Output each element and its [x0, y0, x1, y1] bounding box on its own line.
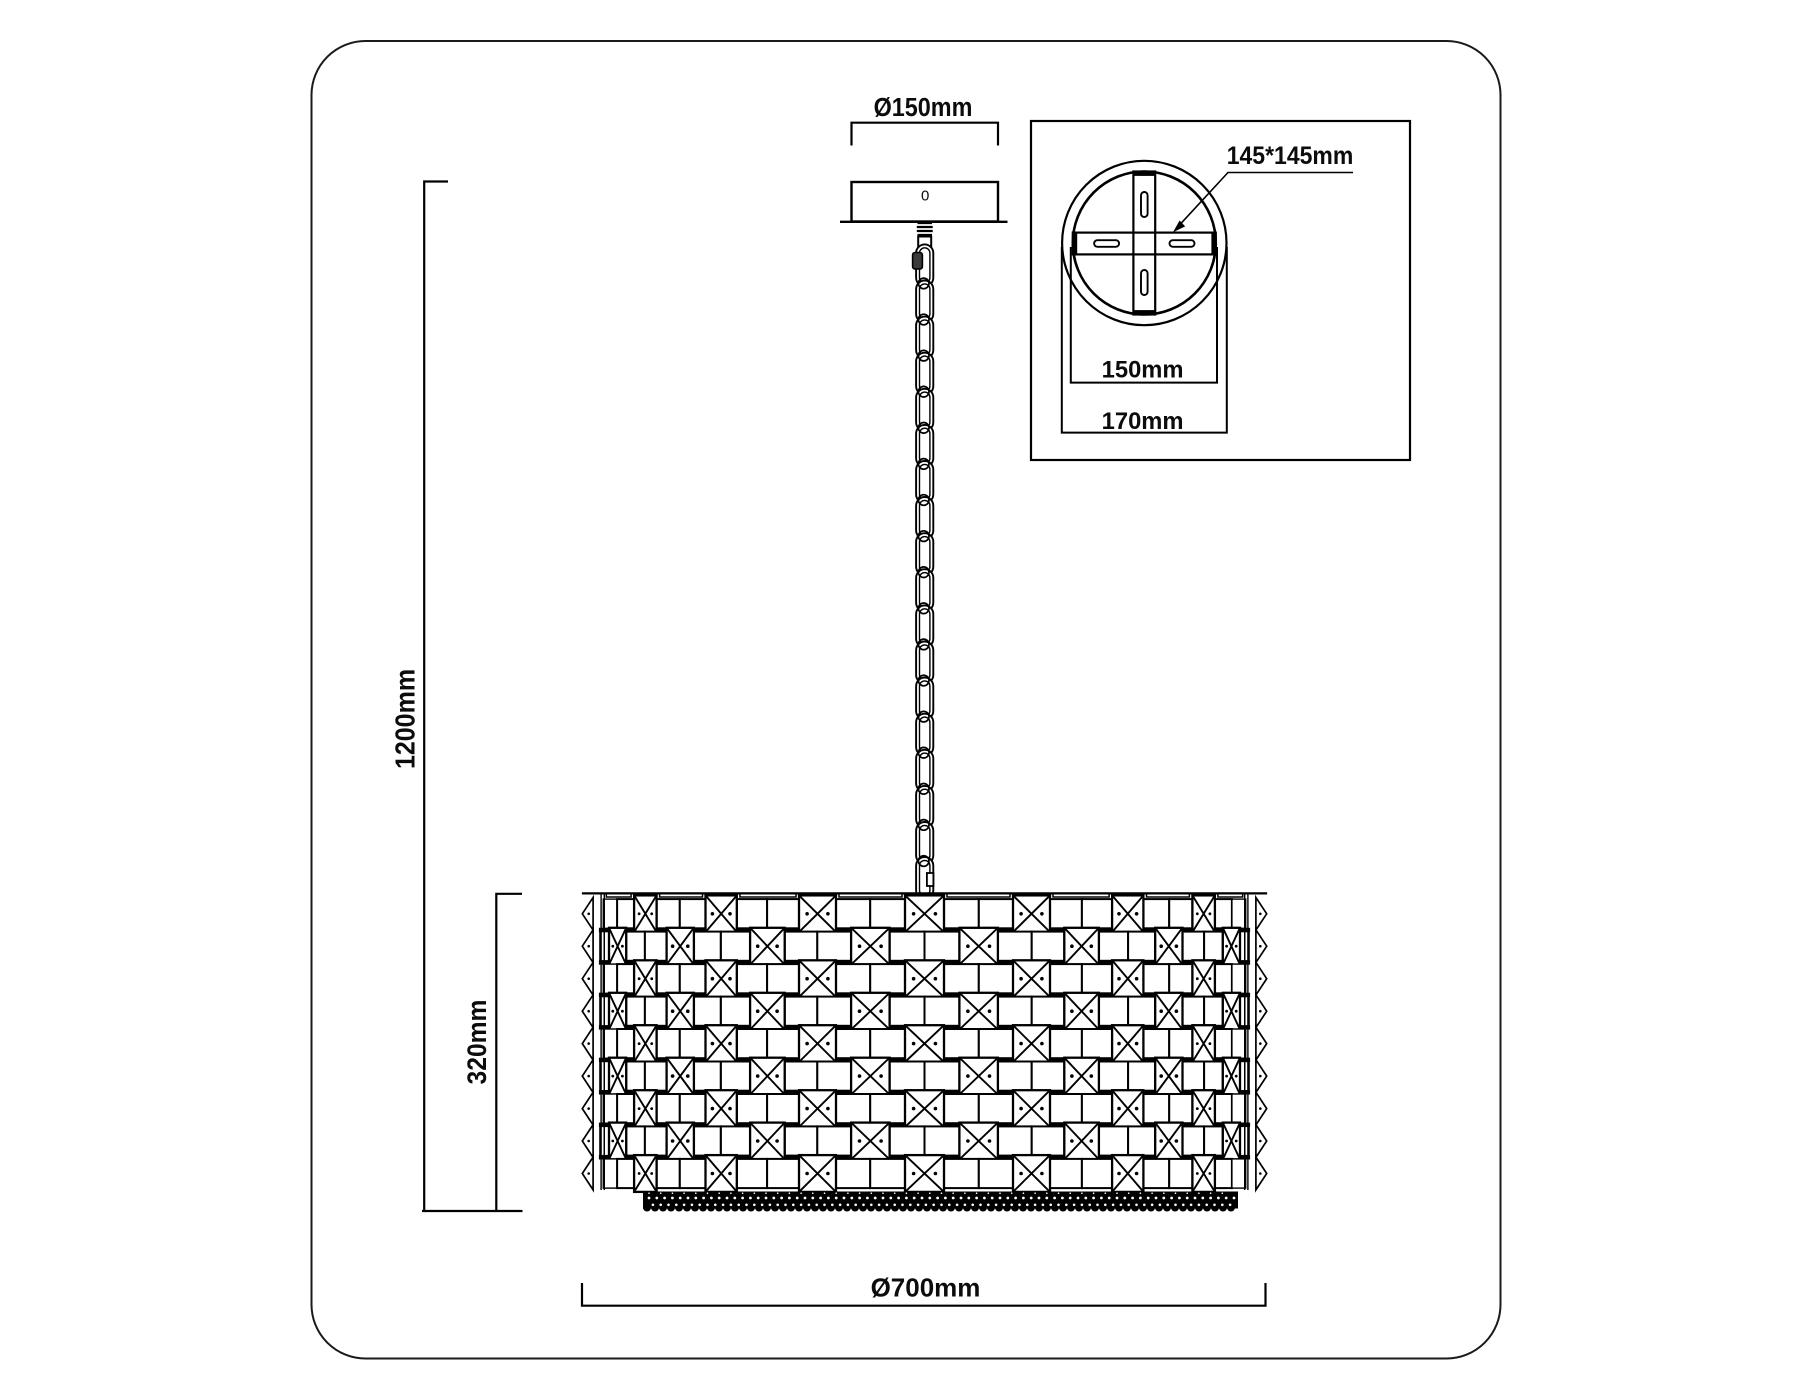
svg-text:Ø150mm: Ø150mm [874, 94, 973, 122]
svg-text:320mm: 320mm [463, 1000, 492, 1085]
svg-text:145*145mm: 145*145mm [1227, 142, 1354, 170]
svg-text:0: 0 [921, 188, 929, 205]
svg-text:Ø700mm: Ø700mm [871, 1273, 981, 1303]
svg-text:170mm: 170mm [1102, 408, 1184, 435]
svg-text:150mm: 150mm [1102, 356, 1184, 383]
svg-text:1200mm: 1200mm [389, 669, 420, 769]
